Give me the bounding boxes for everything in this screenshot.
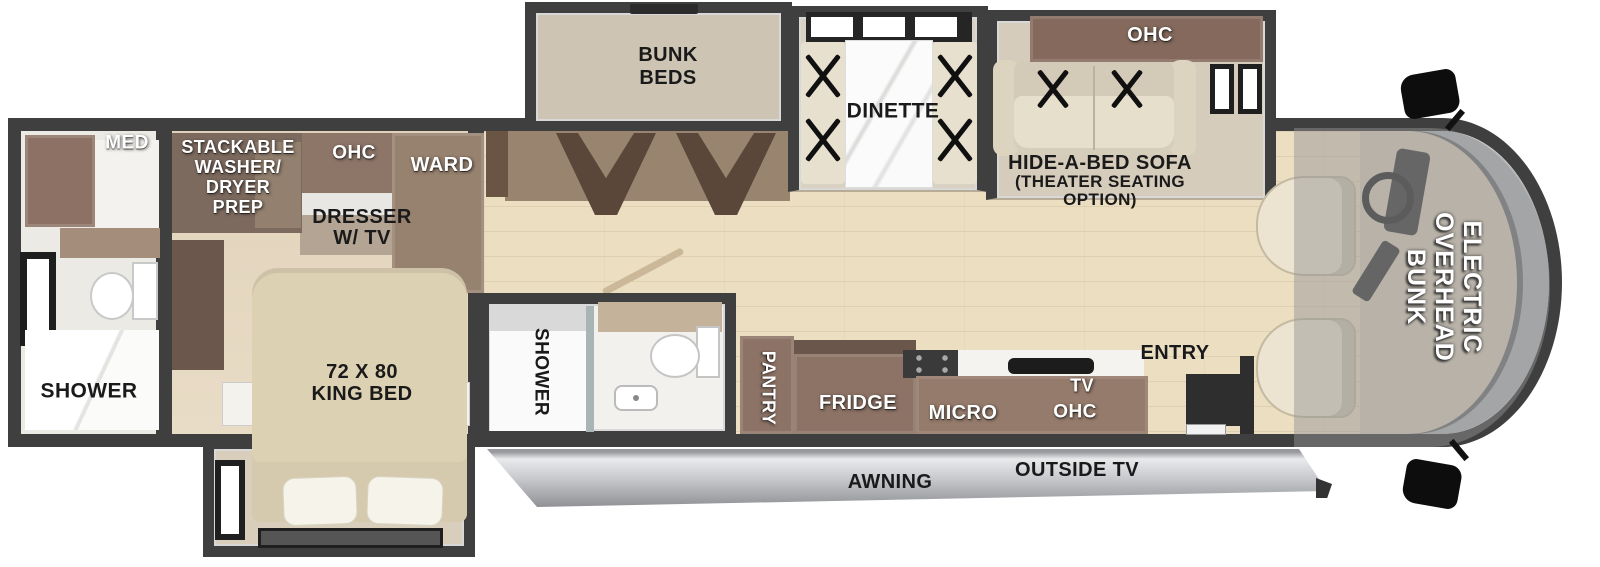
rear-shower-label: SHOWER (41, 381, 138, 404)
king-bed-label-line2: KING BED (312, 383, 413, 405)
awning-label: AWNING (848, 472, 933, 494)
sofa-window-right (1238, 64, 1262, 114)
washer-dryer-label-line4: PREP (181, 197, 294, 217)
king-bed-label-line1: 72 X 80 (312, 361, 413, 383)
mid-toilet-bowl (650, 334, 700, 378)
nightstand-left (222, 382, 254, 426)
med-cabinet (25, 135, 95, 227)
overhead-label-line3: BUNK (1402, 192, 1430, 382)
bedroom-closet (172, 240, 224, 370)
sofa-label-line1: HIDE-A-BED SOFA (1008, 153, 1192, 173)
sofa-label-line2: (THEATER SEATING (1008, 173, 1192, 191)
kitchen-tv (1008, 358, 1094, 374)
dinette-chair-straps (802, 50, 844, 102)
king-slideout-rear-window (258, 528, 443, 548)
king-slideout-side-window (215, 460, 245, 540)
rear-toilet-bowl (90, 272, 134, 320)
dinette-chair-straps (934, 50, 976, 102)
bunk-beds-label: BUNK BEDS (638, 44, 697, 90)
sink-drain (633, 395, 639, 401)
pantry-label: PANTRY (758, 351, 777, 425)
overhead-label-line2: OVERHEAD (1430, 192, 1458, 382)
sofa-window-left (1210, 64, 1234, 114)
dresser-label-line1: DRESSER (312, 207, 412, 228)
dinette-chair-straps (934, 114, 976, 166)
side-mirror-bottom (1401, 457, 1464, 510)
dinette-chair-straps (802, 114, 844, 166)
entry-door (1186, 374, 1240, 426)
rear-toilet-tank (132, 262, 158, 320)
outside-tv-label: OUTSIDE TV (1015, 460, 1139, 482)
dresser-label: DRESSER W/ TV (312, 207, 412, 249)
washer-dryer-label: STACKABLE WASHER/ DRYER PREP (181, 137, 294, 217)
sofa-cushion-divider (1093, 66, 1095, 150)
washer-dryer-label-line1: STACKABLE (181, 137, 294, 157)
rv-floorplan: MED STACKABLE WASHER/ DRYER PREP OHC WAR… (0, 0, 1600, 567)
micro-label: MICRO (929, 403, 998, 425)
sofa-chair-straps (1030, 66, 1076, 112)
overhead-label-line1: ELECTRIC (1458, 192, 1486, 382)
med-label: MED (105, 134, 148, 155)
rear-bath-vanity (60, 228, 160, 258)
washer-dryer-label-line3: DRYER (181, 177, 294, 197)
bunk-slideout-handle (630, 4, 698, 14)
wardrobe-label: WARD (411, 155, 474, 177)
dinette-window (806, 12, 972, 42)
bunk-beds-label-line2: BEDS (638, 67, 697, 90)
washer-dryer-label-line2: WASHER/ (181, 157, 294, 177)
side-mirror-top (1399, 67, 1462, 120)
shower-glass-door (586, 306, 594, 432)
pillow-right (366, 476, 444, 527)
fridge-label: FRIDGE (819, 393, 897, 415)
sofa-chair-straps (1104, 66, 1150, 112)
dinette-label: DINETTE (847, 101, 940, 124)
sofa-ohc-label: OHC (1127, 25, 1173, 47)
mid-shower-label: SHOWER (530, 328, 551, 416)
entry-step (1186, 424, 1226, 435)
kitchen-ohc-label: OHC (1053, 403, 1096, 424)
bunk-beds-label-line1: BUNK (638, 44, 697, 67)
dresser-label-line2: W/ TV (312, 228, 412, 249)
king-bed-label: 72 X 80 KING BED (312, 361, 413, 405)
kitchen-tv-label: TV (1070, 376, 1094, 395)
cooktop-burners (903, 350, 961, 378)
awning-end-cap (1316, 478, 1332, 498)
entry-threshold (1240, 356, 1254, 434)
entry-label: ENTRY (1140, 343, 1209, 365)
sofa-label-line3: OPTION) (1008, 191, 1192, 209)
pillow-left (282, 476, 358, 527)
sofa-label: HIDE-A-BED SOFA (THEATER SEATING OPTION) (1008, 153, 1192, 209)
bunk-shelf (486, 131, 508, 197)
bedroom-ohc-label: OHC (332, 144, 375, 165)
electric-overhead-bunk-label: ELECTRIC OVERHEAD BUNK (1402, 192, 1486, 382)
